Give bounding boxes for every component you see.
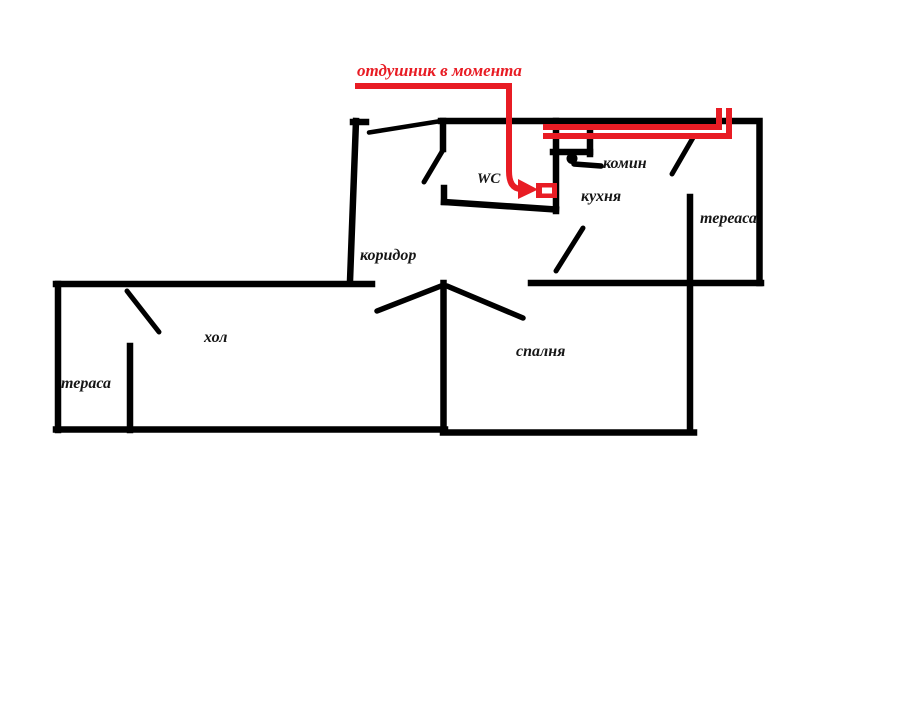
vent-note-label: отдушник в момента bbox=[357, 62, 522, 81]
door-bedroom-diagonal bbox=[447, 286, 523, 318]
vent-symbol-slot bbox=[542, 188, 552, 194]
door-wc bbox=[424, 150, 443, 182]
pipe-line-upper bbox=[543, 108, 719, 127]
room-label-terrace-right: тереаса bbox=[700, 210, 757, 228]
room-label-chimney: комин bbox=[603, 155, 647, 173]
wall-wc-bottom bbox=[444, 202, 556, 210]
walls-group bbox=[56, 121, 761, 433]
door-top-opening bbox=[369, 121, 441, 133]
red-annotations-group bbox=[355, 84, 729, 199]
room-label-corridor: коридор bbox=[360, 247, 416, 265]
door-terrace-left bbox=[127, 291, 159, 332]
door-hol-diagonal bbox=[377, 286, 441, 311]
floor-plan-canvas: отдушник в момента WC комин кухня тереас… bbox=[0, 0, 912, 720]
room-label-terrace-left: тераса bbox=[61, 375, 111, 393]
wall-corridor-left bbox=[350, 121, 356, 281]
room-label-bedroom: спалня bbox=[516, 343, 565, 361]
floor-plan-drawing bbox=[0, 0, 912, 720]
door-terrace-right bbox=[672, 136, 694, 174]
vent-arrowhead-icon bbox=[518, 179, 538, 199]
room-label-wc: WC bbox=[477, 171, 500, 188]
room-label-kitchen: кухня bbox=[581, 188, 621, 206]
chimney-pointer-line bbox=[574, 164, 601, 166]
door-kitchen bbox=[556, 228, 583, 271]
vent-leader-line bbox=[509, 84, 521, 189]
room-label-living-room: хол bbox=[204, 329, 227, 347]
